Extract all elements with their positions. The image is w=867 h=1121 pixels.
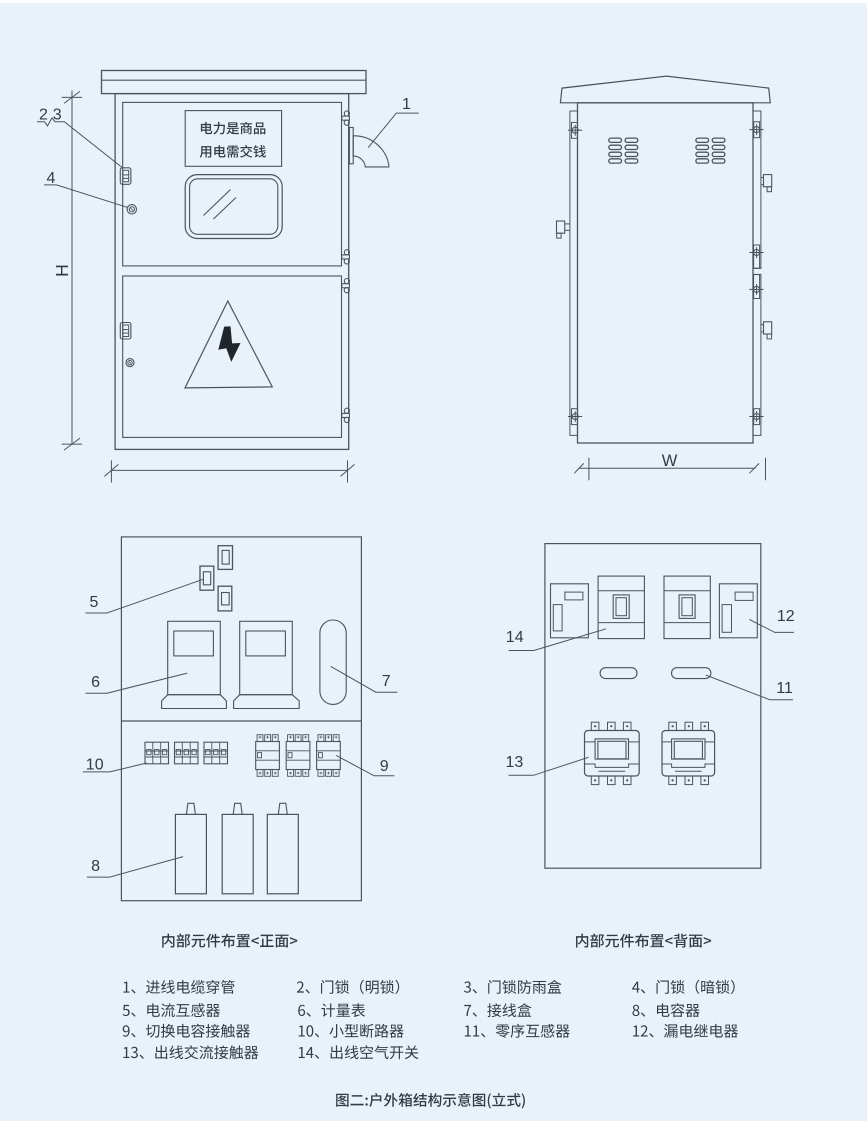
svg-text:12: 12: [777, 608, 795, 625]
svg-text:11: 11: [776, 680, 793, 697]
svg-text:1: 1: [402, 96, 411, 113]
svg-text:H: H: [52, 264, 72, 277]
svg-text:7: 7: [382, 673, 391, 690]
svg-text:2: 2: [39, 107, 48, 124]
svg-text:10: 10: [86, 756, 104, 773]
svg-text:14: 14: [506, 629, 524, 646]
svg-text:8: 8: [91, 858, 100, 875]
svg-text:5: 5: [90, 594, 99, 611]
svg-text:9: 9: [380, 758, 389, 775]
svg-text:W: W: [662, 452, 678, 470]
svg-text:13: 13: [506, 754, 524, 771]
svg-text:6: 6: [91, 674, 100, 691]
